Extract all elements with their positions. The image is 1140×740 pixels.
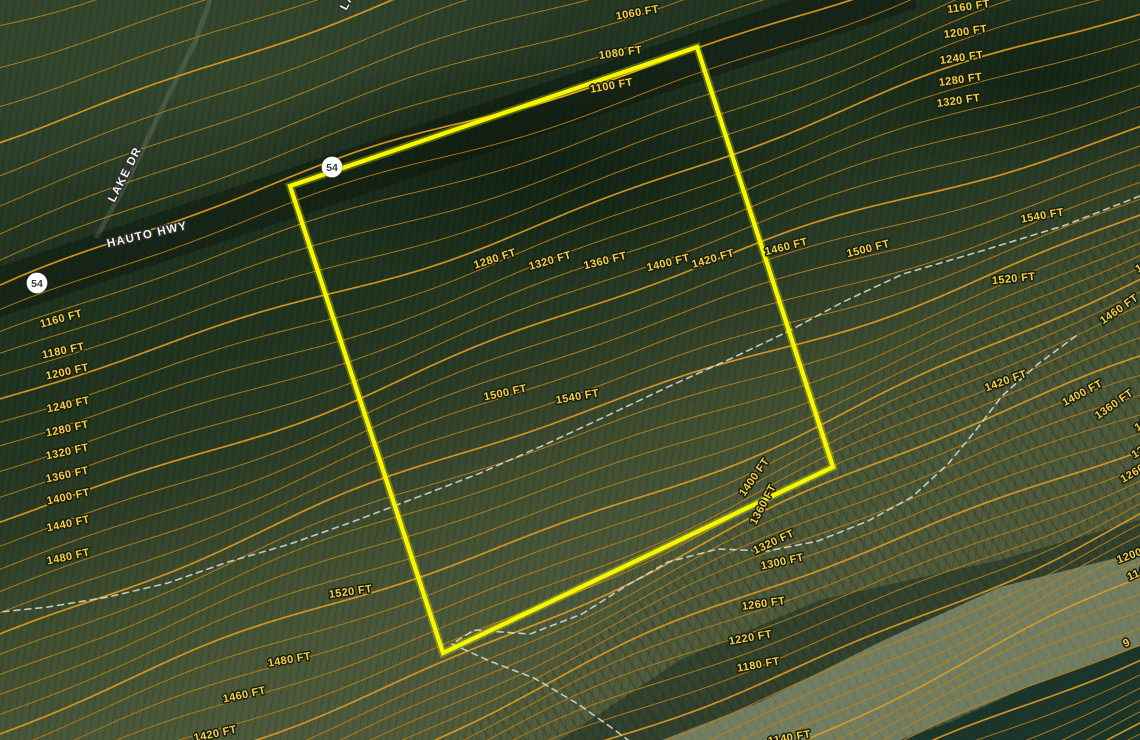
elevation-label: 1420 FT [690,247,735,271]
road-label: LAKE DR [106,145,144,204]
elevation-label: 1500 FT [483,383,528,404]
contour-overlay: 1060 FT1080 FT1100 FT1160 FT1200 FT1240 … [0,0,1140,740]
contour-line [0,73,1140,628]
elevation-label: 1500 FT [846,238,891,260]
elevation-label: 1420 FT [193,724,238,740]
elevation-label: 1480 FT [46,547,91,568]
elevation-label: 1280 FT [472,247,517,272]
elevation-label: 1480 FT [267,650,312,669]
elevation-label: 1400 FT [46,487,91,508]
elevation-label: 1160 FT [946,0,990,16]
elevation-label: 1240 FT [939,49,984,67]
elevation-label: 1320 FT [45,442,90,463]
elevation-label: 1160 FT [39,308,84,331]
elevation-label: 1060 FT [615,3,660,22]
elevation-label: 1360 FT [1093,387,1136,422]
elevation-label: 1520 FT [991,271,1036,288]
route-54-shield-number: 54 [326,162,338,174]
route-54-shield-number: 54 [31,278,43,290]
elevation-label: 1180 FT [41,341,86,362]
road-label: LAKE DR [338,0,376,12]
contour-line [0,86,1140,647]
elevation-label: 1420 FT [983,368,1028,394]
elevation-label: 1460 FT [764,236,809,258]
elevation-label: 1300 FT [760,552,805,573]
elevation-label: 1280 FT [45,419,90,440]
elevation-label: 1360 FT [45,465,90,486]
elevation-label: 1320 FT [1133,401,1140,434]
elevation-label: 1320 FT [527,249,572,273]
elevation-label: 1400 FT [646,252,691,274]
elevation-label: 1240 FT [46,395,91,416]
elevation-label: 1540 FT [555,387,600,406]
elevation-label: 1320 FT [751,528,796,557]
elevation-label: 1460 FT [222,685,267,706]
elevation-label: 1540 FT [1020,206,1065,225]
elevation-label: 1260 FT [741,595,786,613]
elevation-label: 1280 FT [938,71,983,89]
elevation-label: 1360 FT [583,250,628,272]
map-canvas[interactable]: 1060 FT1080 FT1100 FT1160 FT1200 FT1240 … [0,0,1140,740]
elevation-label: 1440 FT [46,514,91,535]
elevation-label: 1320 FT [936,92,981,110]
